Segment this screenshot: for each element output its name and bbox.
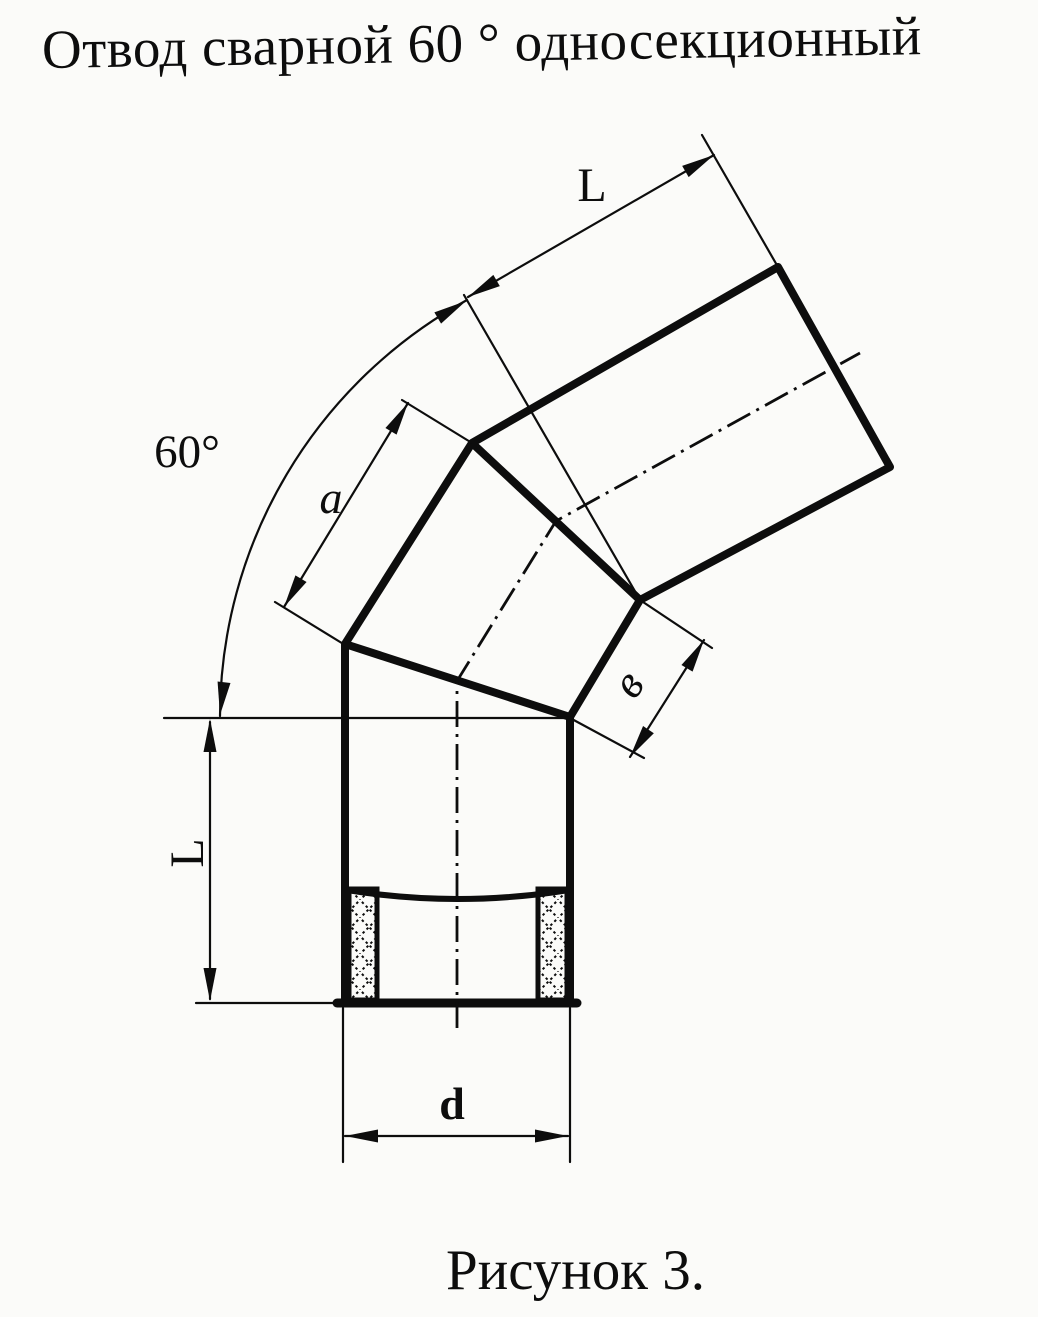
side-a-ext-upper bbox=[402, 400, 472, 443]
side-a-arrow-lower bbox=[278, 575, 306, 610]
diameter-arrow-right bbox=[535, 1130, 568, 1143]
sleeve-wall-left-hatch bbox=[349, 889, 377, 1000]
upper-length-label: L bbox=[577, 159, 606, 212]
angle-arc-arrow-bottom bbox=[214, 681, 231, 715]
side-a-ext-lower bbox=[275, 602, 345, 645]
upper-length-arrow-left bbox=[465, 275, 500, 303]
upper-length-ext-left bbox=[464, 295, 640, 600]
diameter-label: d bbox=[439, 1078, 465, 1129]
elbow-outline bbox=[337, 267, 890, 1003]
side-b-ext-outer bbox=[640, 600, 712, 648]
dimension-side-a: а bbox=[275, 400, 472, 645]
sleeve-wall-right-hatch bbox=[538, 889, 567, 1000]
center-line bbox=[457, 353, 860, 1028]
lower-length-arrow-bottom bbox=[204, 968, 217, 1001]
side-b-label: в bbox=[601, 661, 654, 707]
pipe-walls bbox=[345, 267, 890, 1000]
lower-length-arrow-top bbox=[204, 719, 217, 752]
scanned-drawing-page: Отвод сварной 60 ° односекционный 60° bbox=[0, 0, 1038, 1317]
dimension-diameter: d bbox=[343, 1008, 570, 1162]
figure-caption: Рисунок 3. bbox=[446, 1238, 705, 1303]
technical-drawing: 60° L а в bbox=[0, 0, 1038, 1317]
side-b-arrow-upper bbox=[681, 637, 709, 672]
angle-label: 60° bbox=[154, 426, 220, 478]
dimension-upper-length: L bbox=[464, 135, 778, 600]
dimension-angle: 60° bbox=[154, 295, 469, 716]
lower-length-label: L bbox=[161, 838, 214, 867]
diameter-arrow-left bbox=[345, 1130, 378, 1143]
angle-arc-arrow-top bbox=[434, 295, 469, 323]
side-a-label: а bbox=[320, 472, 343, 523]
